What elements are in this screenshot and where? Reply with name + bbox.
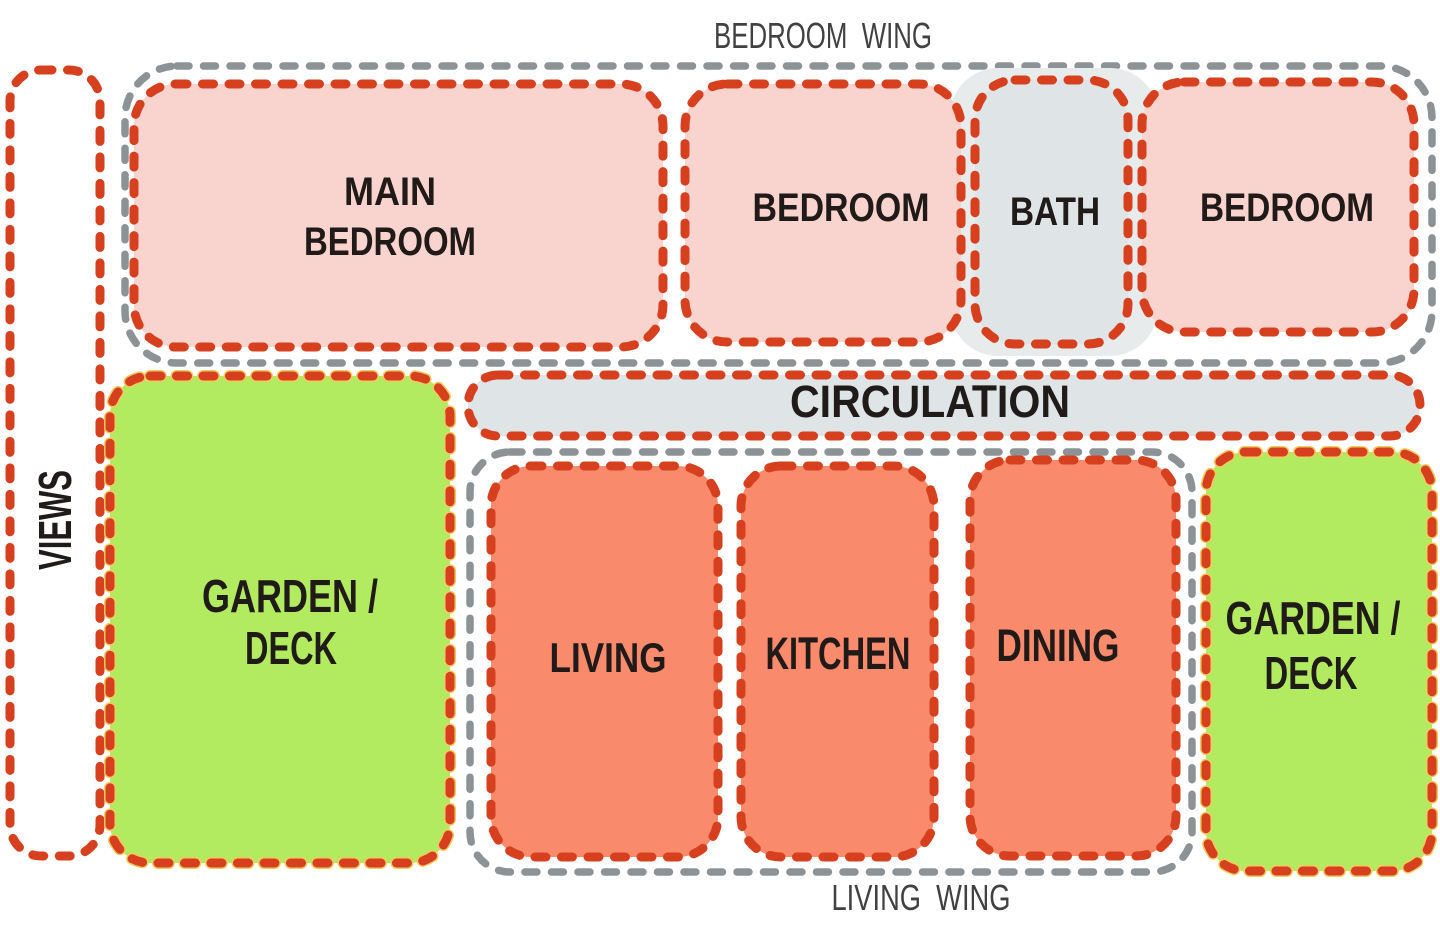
svg-text:BEDROOM: BEDROOM bbox=[1200, 186, 1374, 230]
svg-text:BEDROOM WING: BEDROOM WING bbox=[714, 15, 932, 56]
svg-text:LIVING WING: LIVING WING bbox=[832, 877, 1011, 918]
svg-text:DINING: DINING bbox=[997, 620, 1120, 671]
svg-text:KITCHEN: KITCHEN bbox=[766, 628, 911, 679]
svg-text:GARDEN /: GARDEN / bbox=[1226, 592, 1401, 644]
svg-text:BEDROOM: BEDROOM bbox=[753, 186, 930, 230]
svg-text:CIRCULATION: CIRCULATION bbox=[790, 376, 1070, 427]
svg-text:GARDEN /: GARDEN / bbox=[202, 570, 378, 622]
svg-text:VIEWS: VIEWS bbox=[29, 470, 81, 570]
svg-text:DECK: DECK bbox=[1265, 647, 1358, 699]
svg-text:DECK: DECK bbox=[245, 622, 337, 674]
svg-text:MAIN: MAIN bbox=[344, 170, 436, 214]
svg-text:BATH: BATH bbox=[1010, 190, 1100, 234]
svg-text:BEDROOM: BEDROOM bbox=[304, 220, 476, 264]
svg-text:LIVING: LIVING bbox=[550, 634, 667, 681]
